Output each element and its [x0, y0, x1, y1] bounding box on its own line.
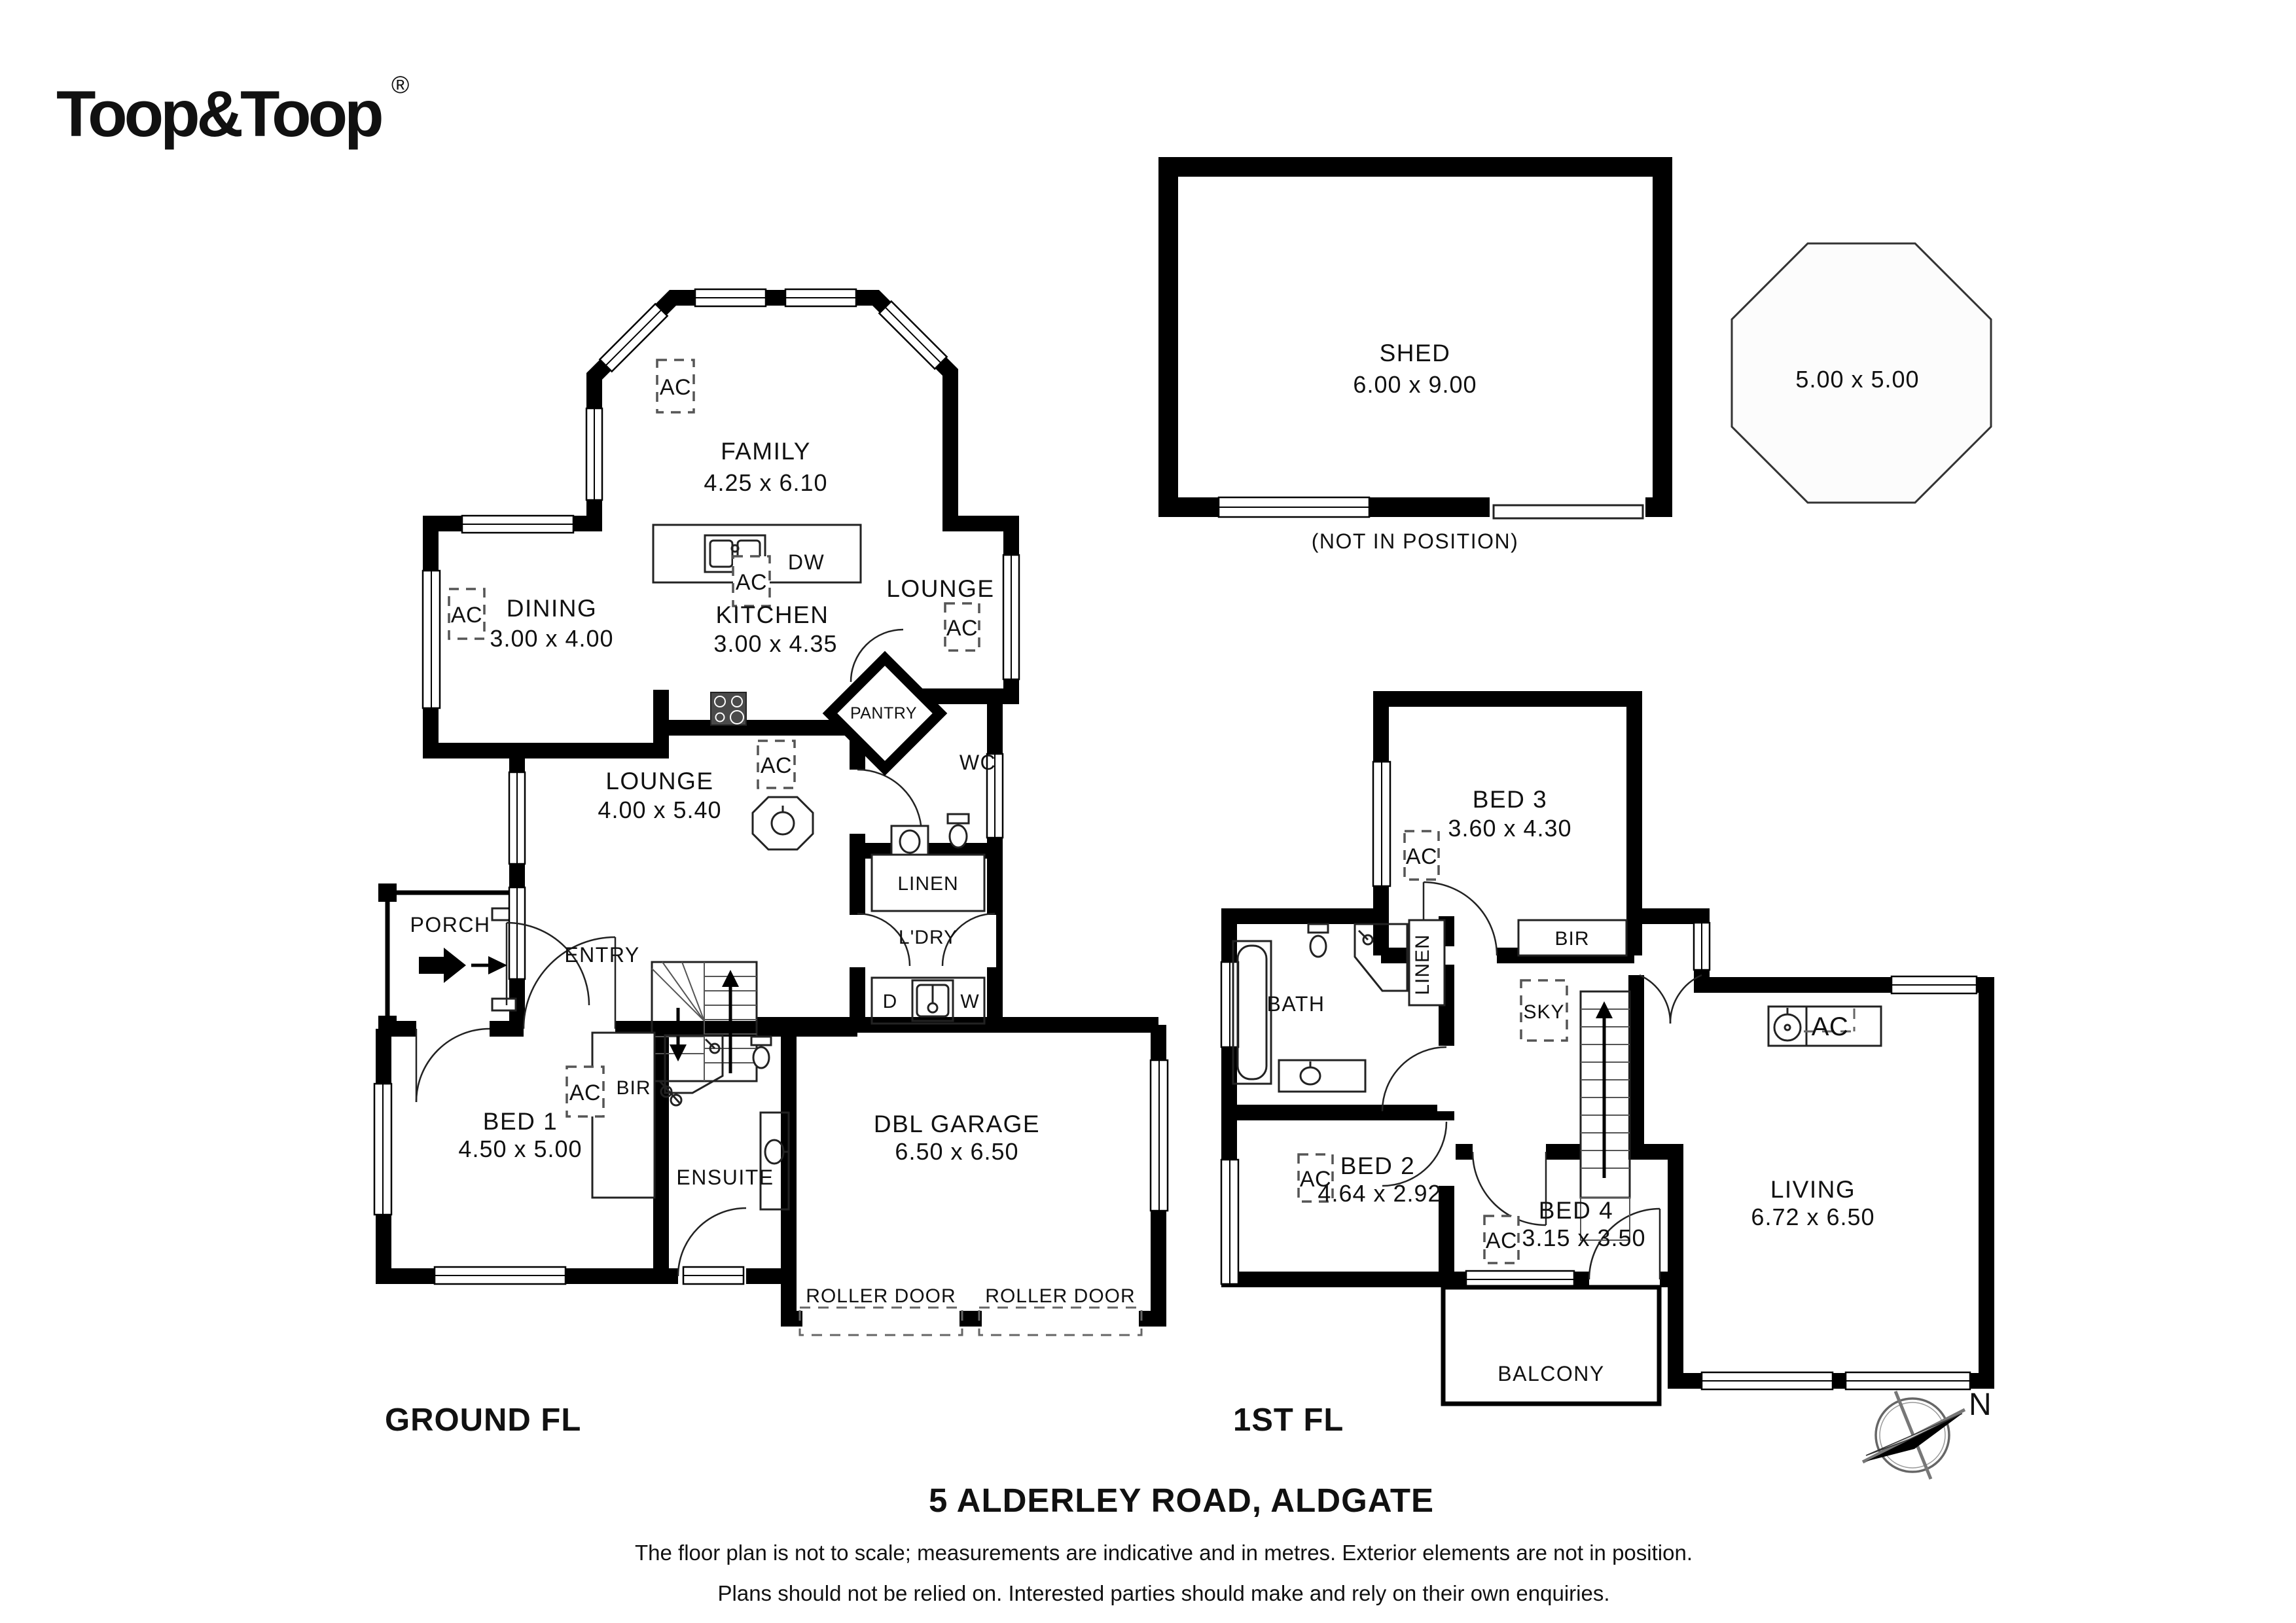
window: [586, 408, 602, 500]
room-dims-bed2: 4.64 x 2.92: [1318, 1180, 1441, 1207]
room-label-dining: DINING: [507, 595, 598, 622]
room-label-lounge-rear: LOUNGE: [886, 575, 994, 602]
window: [423, 571, 440, 708]
room-label-bath: BATH: [1267, 992, 1325, 1016]
floor-title-first: 1ST FL: [1233, 1402, 1344, 1438]
room-label-kitchen: KITCHEN: [716, 601, 829, 628]
door-swing: [1473, 1152, 1546, 1225]
room-label-bed4: BED 4: [1539, 1197, 1613, 1224]
ac-unit: AC: [945, 603, 979, 651]
room-label-bed1: BED 1: [483, 1108, 558, 1135]
ac-label: AC: [569, 1080, 601, 1105]
window: [879, 301, 946, 368]
room-label-balcony: BALCONY: [1498, 1362, 1604, 1385]
toilet-icon: [751, 1037, 771, 1068]
door-gap: [850, 915, 868, 967]
wall-hall-east: [1634, 916, 1702, 975]
door-swing: [678, 1208, 746, 1276]
room-label-lounge: LOUNGE: [605, 768, 713, 794]
shed-dims: 6.00 x 9.00: [1353, 371, 1477, 398]
ac-label: AC: [451, 603, 482, 628]
window: [683, 1267, 744, 1284]
toilet-icon: [948, 814, 969, 847]
roller-door-opening: [982, 1310, 1139, 1327]
window: [1694, 923, 1710, 970]
shower-icon: [665, 1035, 723, 1093]
washer-icon: [912, 980, 953, 1021]
room-label-garage: DBL GARAGE: [874, 1111, 1040, 1137]
window: [1892, 976, 1977, 993]
shed-label: SHED: [1380, 340, 1451, 366]
floor-title-ground: GROUND FL: [385, 1402, 581, 1438]
room-label-entry: ENTRY: [564, 943, 639, 967]
room-label-bir: BIR: [616, 1077, 651, 1099]
room-label-bed2: BED 2: [1340, 1152, 1415, 1179]
shed-note: (NOT IN POSITION): [1312, 529, 1518, 553]
door-swing-double: [1640, 975, 1702, 1024]
label-washer: W: [960, 991, 979, 1012]
gazebo-dims: 5.00 x 5.00: [1795, 366, 1919, 393]
cooktop-icon: [711, 692, 746, 725]
label-dishwasher: DW: [788, 550, 825, 574]
window: [1373, 762, 1390, 886]
north-label: N: [1969, 1387, 1992, 1422]
room-label-family: FAMILY: [721, 438, 811, 465]
window: [509, 772, 525, 864]
ac-label: AC: [1406, 844, 1437, 869]
ac-label: AC: [946, 616, 978, 641]
floorplan-page: Toop&Toop ®: [0, 0, 2296, 1623]
window: [1219, 497, 1369, 517]
registered-mark-icon: ®: [391, 71, 409, 98]
ac-label: AC: [660, 375, 691, 400]
window: [509, 887, 525, 979]
shed: SHED 6.00 x 9.00 (NOT IN POSITION): [1168, 167, 1662, 553]
room-label-porch: PORCH: [410, 913, 490, 936]
door-gap: [978, 915, 996, 967]
room-label-ensuite: ENSUITE: [676, 1166, 774, 1189]
balcony: [1443, 1287, 1659, 1404]
svg-text:LINEN: LINEN: [1412, 934, 1433, 995]
brand-logo: Toop&Toop: [56, 77, 382, 150]
label-dryer: D: [883, 991, 898, 1012]
room-label-laundry: L'DRY: [899, 927, 958, 948]
window: [1221, 962, 1238, 1047]
window: [1151, 1060, 1168, 1211]
door-gap: [1666, 1021, 1685, 1093]
ac-unit: AC: [567, 1067, 603, 1116]
ac-label: AC: [761, 753, 792, 778]
door-swing: [416, 1029, 490, 1102]
toilet-icon: [1308, 924, 1328, 957]
entry-arrow-icon: [419, 948, 507, 983]
ac-unit: AC: [733, 556, 770, 606]
door-gap: [1473, 1143, 1546, 1161]
room-dims-dining: 3.00 x 4.00: [490, 625, 613, 652]
window: [695, 289, 766, 306]
room-dims-bed1: 4.50 x 5.00: [458, 1135, 582, 1162]
ac-label: AC: [736, 570, 767, 595]
address: 5 ALDERLEY ROAD, ALDGATE: [929, 1482, 1434, 1519]
window: [435, 1267, 565, 1284]
gazebo: 5.00 x 5.00: [1732, 243, 1991, 503]
ac-unit: AC: [657, 360, 694, 412]
wall-garage: [789, 1025, 1158, 1319]
window: [462, 516, 573, 533]
label-roller-door-1: ROLLER DOOR: [806, 1285, 956, 1307]
ground-floor-plan: AC AC AC AC AC AC FAMILY 4.25 x 6.10 DIN…: [374, 289, 1168, 1335]
heater-icon: [1774, 1008, 1801, 1041]
stair-up-arrow-icon: [722, 970, 739, 987]
window: [1003, 555, 1019, 679]
room-dims-family: 4.25 x 6.10: [704, 469, 827, 496]
room-label-bed3: BED 3: [1473, 786, 1547, 813]
door-gap: [850, 770, 868, 834]
disclaimer-line1: The floor plan is not to scale; measurem…: [635, 1541, 1693, 1565]
compass: N: [1863, 1387, 1992, 1479]
room-dims-living: 6.72 x 6.50: [1751, 1204, 1874, 1230]
label-roller-door-2: ROLLER DOOR: [985, 1285, 1135, 1307]
room-label-bir: BIR: [1554, 928, 1589, 950]
window: [1846, 1372, 1970, 1389]
skylight: SKY: [1521, 980, 1567, 1041]
window: [785, 289, 856, 306]
door-gap: [1437, 1046, 1456, 1111]
room-label-living: LIVING: [1770, 1176, 1856, 1203]
floorplan-drawing: Toop&Toop ®: [0, 0, 2296, 1623]
ac-unit: AC: [449, 589, 484, 639]
skylight-label: SKY: [1523, 1001, 1564, 1023]
room-dims-bed3: 3.60 x 4.30: [1448, 815, 1571, 842]
window: [374, 1084, 391, 1215]
first-floor-plan: SKY AC AC AC AC BED 3 3.60 x 4.30 BIR BA…: [1221, 699, 1986, 1404]
room-label-wc: WC: [960, 751, 996, 774]
door-swing: [1382, 1047, 1446, 1111]
pantry: [830, 630, 940, 768]
roller-door-opening: [802, 1310, 960, 1327]
room-label-linen: LINEN: [897, 873, 958, 895]
room-dims-garage: 6.50 x 6.50: [895, 1138, 1018, 1165]
ac-label: AC: [1812, 1012, 1849, 1041]
shed-door-leaf: [1494, 505, 1643, 518]
ac-unit: AC: [1405, 831, 1439, 880]
ac-unit: AC: [758, 741, 795, 788]
window: [1702, 1372, 1833, 1389]
room-dims-lounge: 4.00 x 5.40: [598, 796, 721, 823]
window: [1221, 1160, 1238, 1284]
vanity-icon: [1279, 1060, 1365, 1092]
room-dims-bed4: 3.15 x 3.50: [1522, 1224, 1645, 1251]
ac-label: AC: [1486, 1228, 1517, 1253]
basin-icon: [891, 826, 928, 857]
disclaimer-line2: Plans should not be relied on. Intereste…: [718, 1581, 1610, 1605]
heater-icon: [753, 797, 813, 849]
room-label-linen: LINEN: [1412, 934, 1433, 995]
room-dims-kitchen: 3.00 x 4.35: [713, 630, 837, 657]
ac-unit: AC: [1484, 1216, 1518, 1263]
room-label-pantry: PANTRY: [850, 704, 917, 722]
